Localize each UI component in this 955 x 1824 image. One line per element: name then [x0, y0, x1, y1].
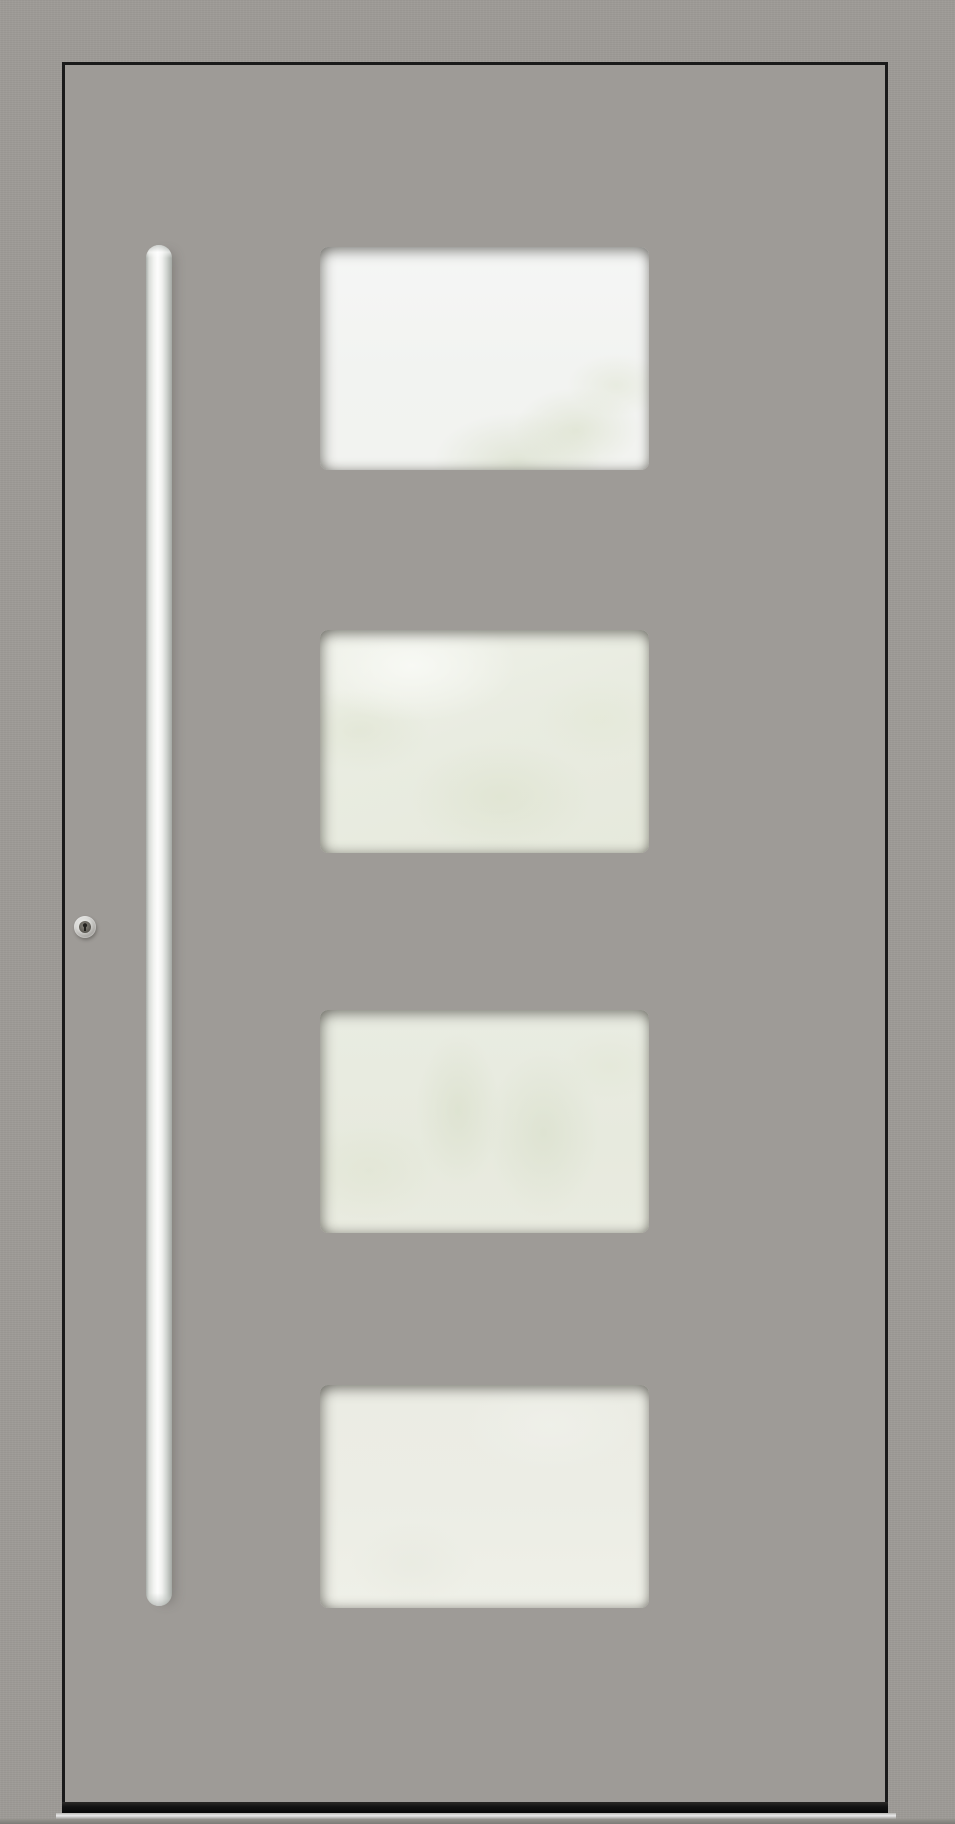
- handle-top-cap: [146, 245, 172, 258]
- handle-bottom-cap: [146, 1593, 172, 1606]
- glass-panel-1: [320, 247, 649, 470]
- glass-panel-4: [320, 1385, 649, 1608]
- keyhole-icon: [79, 921, 91, 933]
- glass-panel-3: [320, 1010, 649, 1233]
- glass-panel-2: [320, 630, 649, 853]
- threshold-base: [0, 1819, 955, 1824]
- door-bottom-gap: [62, 1802, 888, 1813]
- bar-handle: [146, 245, 172, 1606]
- door-leaf: [62, 62, 888, 1802]
- lock-cylinder: [74, 916, 96, 938]
- door-photo: [0, 0, 955, 1824]
